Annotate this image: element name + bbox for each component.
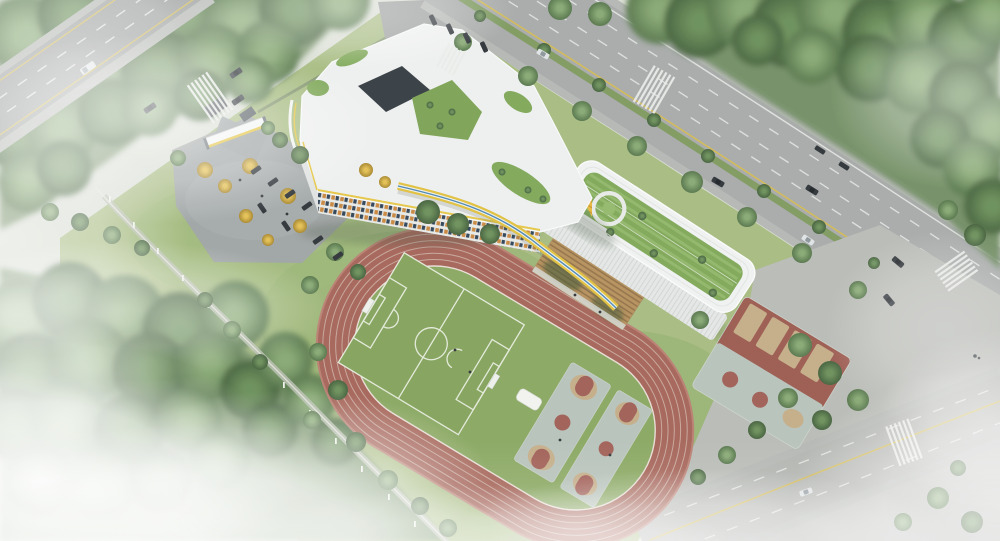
campus-aerial-rendering	[0, 0, 1000, 541]
fog-overlays	[0, 0, 1000, 541]
rendering-canvas	[0, 0, 1000, 541]
